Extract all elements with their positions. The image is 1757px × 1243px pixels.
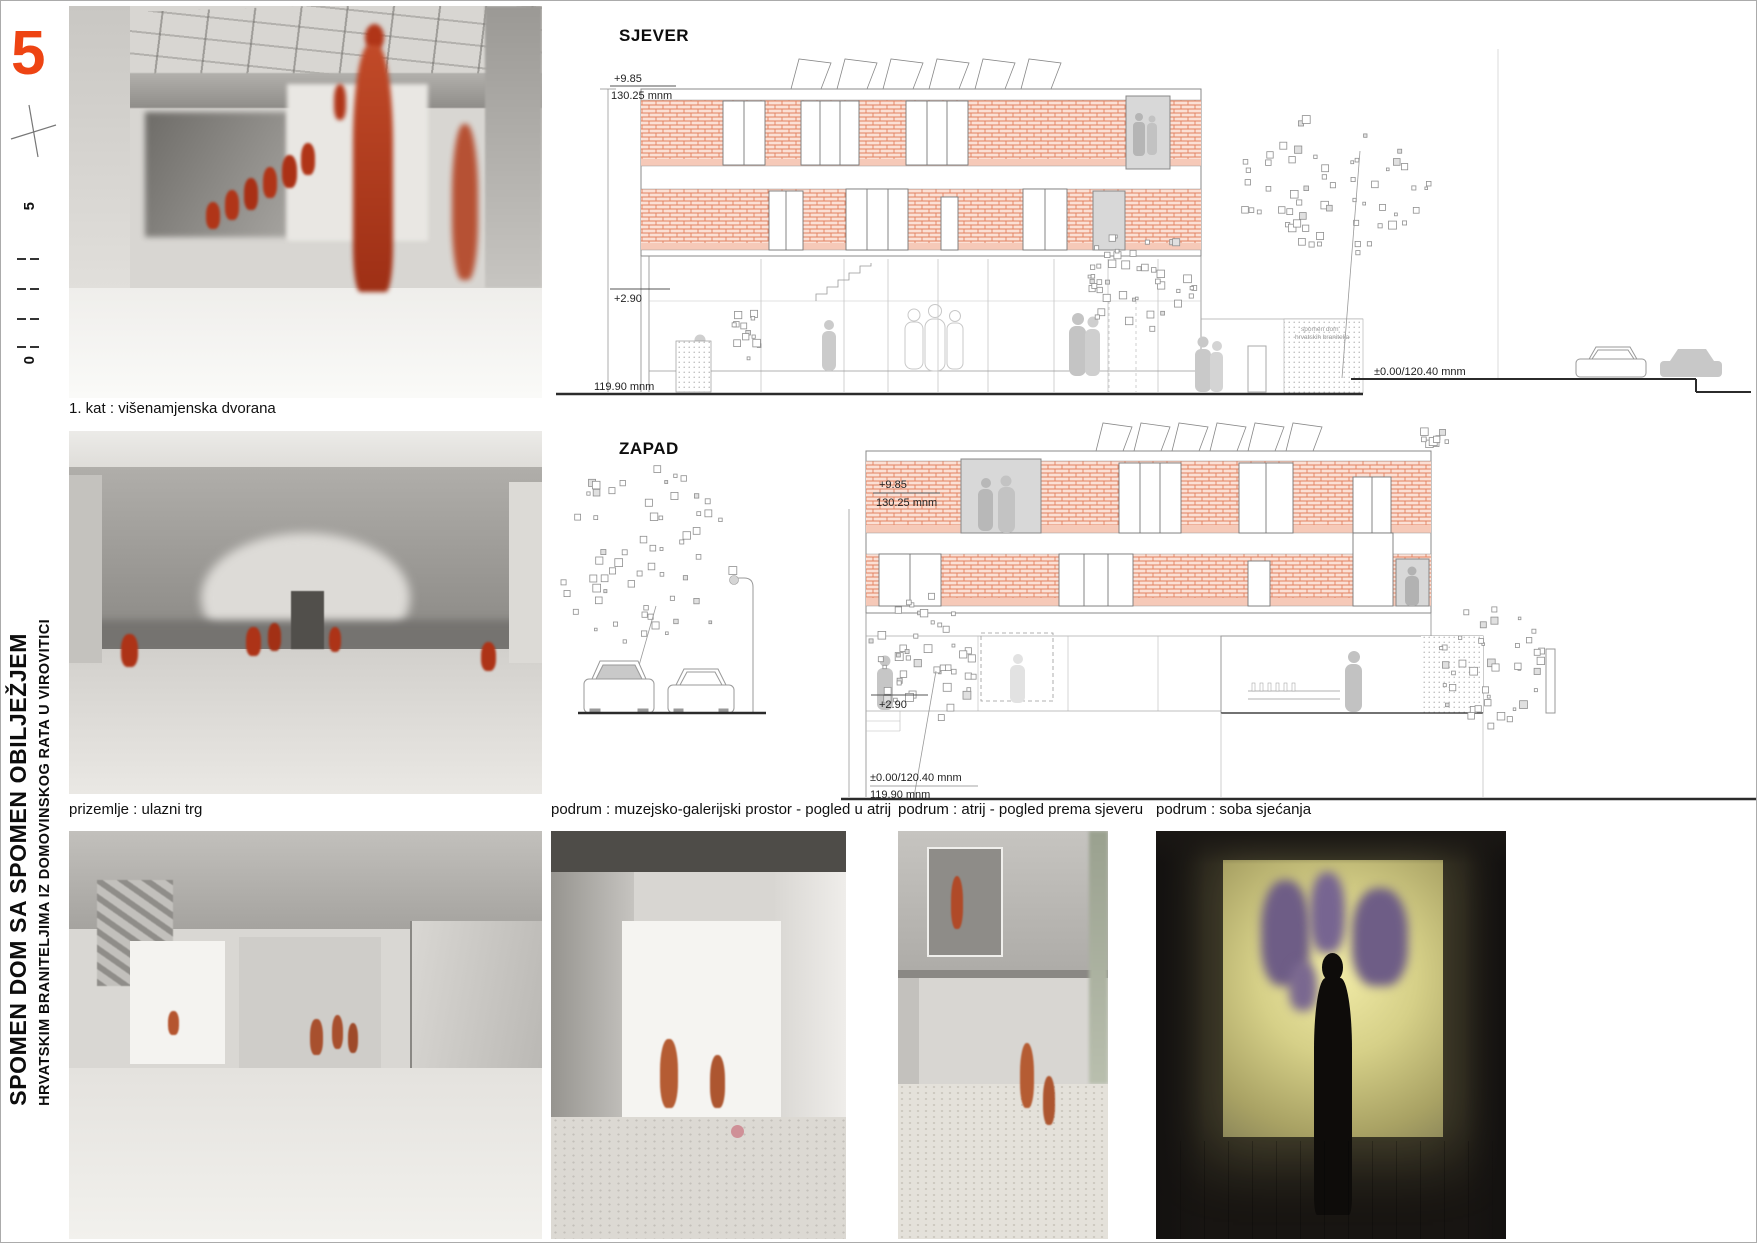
orange-figure: [710, 1055, 725, 1108]
photo-left-column: [898, 978, 919, 1100]
model-photo-first-floor: [69, 6, 542, 398]
elevation-west-drawing: ZAPAD: [548, 421, 1757, 821]
pixel-shrub: [1421, 428, 1449, 448]
photo-ceiling: [551, 831, 846, 872]
datum-label: 119.90 mnm: [594, 381, 654, 393]
site-wall: [1546, 649, 1555, 713]
level-label: +2.90: [614, 293, 642, 305]
photo-back-wall: [898, 978, 1108, 1084]
photo-greenery: [1089, 831, 1108, 1084]
scale-tick: [30, 288, 39, 290]
shrub-pixel-tree: [732, 310, 761, 360]
red-figure: [452, 124, 478, 281]
photo-right-wall: [509, 482, 542, 664]
building-label: spomen dom: [1301, 326, 1339, 333]
photo-right-wall: [775, 872, 846, 1133]
lower-zone: [866, 593, 1555, 797]
ground-floor: spomen dom hrvatskih branitelja: [641, 235, 1363, 393]
photo-beam-edge: [898, 970, 1108, 978]
figure-silhouette: [1210, 341, 1223, 392]
pink-ball: [731, 1125, 744, 1138]
red-figure: [121, 634, 138, 667]
scale-bottom-label: 0: [21, 356, 38, 364]
red-figure: [951, 876, 964, 929]
red-figure: [332, 1015, 343, 1050]
red-figure: [282, 155, 297, 188]
dimension-lines: [600, 89, 616, 392]
photo-square-opening: [927, 847, 1002, 957]
planter: [676, 341, 711, 392]
red-figure: [348, 1023, 358, 1054]
stairs: [816, 263, 871, 301]
red-figure: [168, 1011, 178, 1035]
figure-outline-group: [905, 305, 963, 372]
photo-floor: [69, 649, 542, 794]
red-figure: [329, 627, 341, 652]
photo-caption: prizemlje : ulazni trg: [69, 801, 202, 818]
photo-caption: 1. kat : višenamjenska dvorana: [69, 400, 276, 417]
entry-steps: [866, 711, 900, 731]
pixel-tree: [1242, 116, 1431, 255]
red-figure: [225, 190, 239, 219]
scale-top-label: 5: [21, 202, 38, 210]
projected-crowd-blob: [1310, 872, 1345, 954]
photo-right-column: [485, 6, 542, 288]
photo-floor: [898, 1084, 1108, 1239]
model-photo-basement-hall: [69, 831, 542, 1239]
photo-doorway: [291, 591, 324, 649]
red-figure: [310, 1019, 322, 1056]
red-figure: [244, 178, 258, 209]
figure-silhouette: [1195, 337, 1211, 393]
scale-bar: 5 0: [15, 194, 45, 386]
red-figure: [481, 642, 496, 671]
level-label: +9.85: [614, 73, 642, 85]
scale-tick: [30, 346, 39, 348]
building-label: hrvatskih branitelja: [1295, 334, 1350, 341]
photo-vignette-left: [1156, 831, 1205, 1239]
red-figure: [334, 84, 346, 119]
car: [668, 669, 734, 713]
photo-white-opening: [130, 941, 225, 1063]
car: [584, 661, 654, 713]
photo-floor: [69, 1068, 542, 1239]
scale-tick: [17, 346, 26, 348]
photo-back-wall: [622, 921, 781, 1133]
red-figure: [263, 167, 277, 198]
photo-left-pillar: [69, 475, 102, 664]
orange-figure: [1043, 1076, 1056, 1125]
upper-facade: [641, 89, 1201, 256]
level-label: ±0.00/120.40 mnm: [870, 772, 962, 784]
datum-label: 119.90 mnm: [870, 789, 930, 801]
project-subtitle: HRVATSKIM BRANITELJIMA IZ DOMOVINSKOG RA…: [37, 619, 53, 1106]
model-photo-ground-floor: [69, 431, 542, 794]
datum-label: 130.25 mnm: [876, 497, 937, 509]
orange-figure: [1020, 1043, 1035, 1108]
photo-floor: [69, 288, 542, 398]
windows-row1: [723, 101, 968, 165]
datum-label: 130.25 mnm: [611, 90, 672, 102]
red-figure-large: [353, 45, 393, 292]
photo-floor: [551, 1117, 846, 1239]
upper-facade: [866, 451, 1431, 613]
skylights: [791, 59, 1061, 89]
elevation-title: ZAPAD: [619, 439, 679, 458]
photo-left-wall: [69, 6, 130, 312]
orange-figure: [660, 1039, 678, 1108]
figure-silhouette: [1085, 317, 1100, 377]
photo-floor: [1156, 1141, 1506, 1239]
photo-vignette-top: [1156, 831, 1506, 864]
registration-cross-icon: [9, 99, 59, 161]
model-photo-atrium: [898, 831, 1108, 1239]
door: [1248, 346, 1266, 392]
scale-tick: [17, 258, 26, 260]
photo-vignette-right: [1464, 831, 1506, 1239]
car: [1660, 349, 1722, 377]
scale-tick: [17, 288, 26, 290]
level-label: +2.90: [879, 699, 907, 711]
pixel-tree: [561, 466, 737, 643]
level-label: +9.85: [879, 479, 907, 491]
figure-silhouette: [822, 320, 836, 371]
model-photo-memory-room: [1156, 831, 1506, 1239]
presentation-board: 5 5 0 SPOMEN DOM SA SPOMEN OBILJEŽJEM HR…: [0, 0, 1757, 1243]
red-figure: [206, 202, 220, 229]
skylights: [1096, 423, 1322, 451]
projected-crowd-blob: [1352, 888, 1408, 986]
scale-tick: [17, 318, 26, 320]
elevation-north-drawing: SJEVER: [548, 1, 1757, 411]
red-figure: [246, 627, 260, 656]
panel-number: 5: [11, 23, 45, 85]
scale-tick: [30, 318, 39, 320]
figure-silhouette: [1010, 654, 1025, 703]
red-figure: [301, 143, 315, 174]
ground-line-upper: [1351, 379, 1751, 392]
projected-crowd-blob: [1289, 962, 1317, 1011]
car: [1576, 347, 1646, 377]
red-figure: [268, 623, 281, 650]
scale-tick: [30, 258, 39, 260]
figure-silhouette: [1069, 313, 1086, 376]
elevation-title: SJEVER: [619, 26, 689, 45]
lamp-head: [730, 576, 739, 585]
level-label: ±0.00/120.40 mnm: [1374, 366, 1466, 378]
street-lamp: [737, 578, 753, 713]
project-title: SPOMEN DOM SA SPOMEN OBILJEŽJEM: [5, 633, 32, 1106]
model-photo-gallery-corridor: [551, 831, 846, 1239]
